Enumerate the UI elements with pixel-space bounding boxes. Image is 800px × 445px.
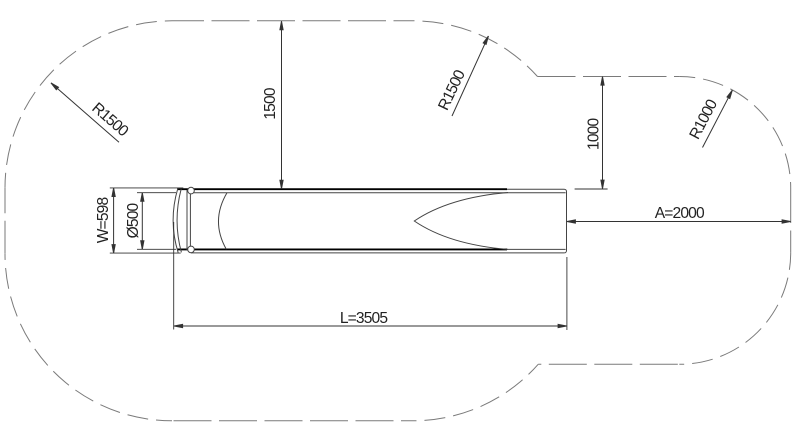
svg-text:A=2000: A=2000 (655, 205, 705, 222)
svg-text:L=3505: L=3505 (340, 310, 389, 327)
svg-text:Ø500: Ø500 (125, 202, 142, 238)
svg-text:W=598: W=598 (95, 198, 112, 244)
svg-text:1500: 1500 (262, 87, 279, 119)
svg-text:1000: 1000 (585, 117, 602, 149)
